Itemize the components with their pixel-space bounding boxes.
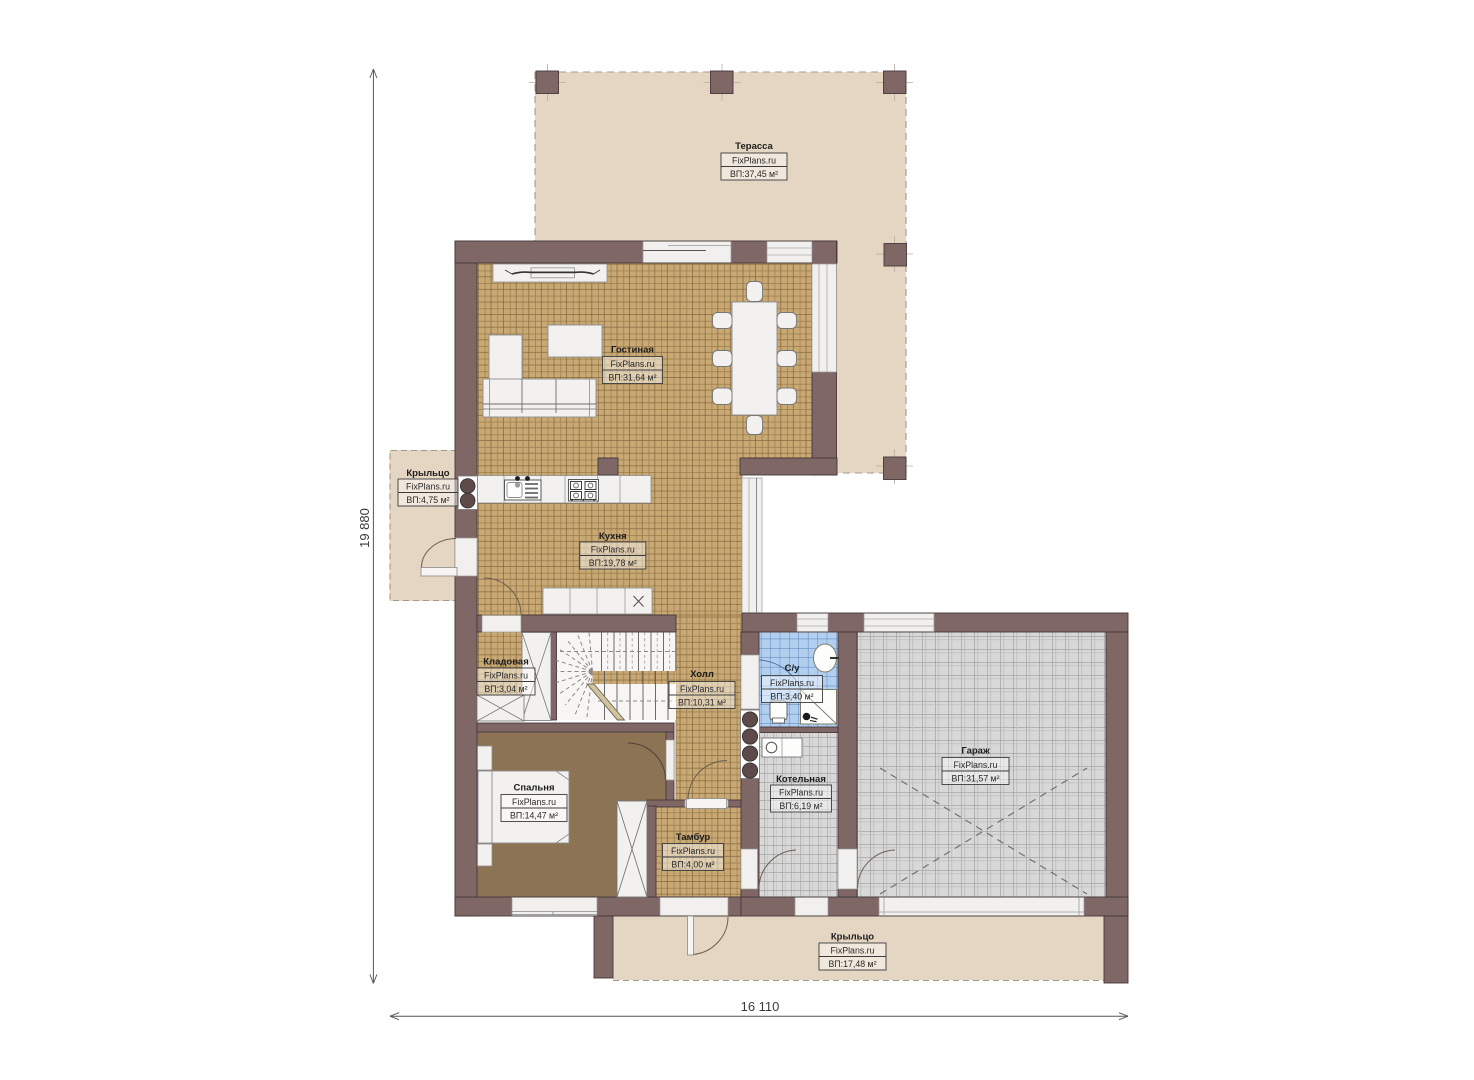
svg-text:Спальня: Спальня (513, 783, 554, 794)
svg-text:Крыльцо: Крыльцо (831, 932, 874, 943)
svg-text:19 880: 19 880 (357, 508, 372, 548)
svg-text:FixPlans.ru: FixPlans.ru (732, 155, 776, 165)
svg-text:FixPlans.ru: FixPlans.ru (770, 678, 814, 688)
svg-text:FixPlans.ru: FixPlans.ru (954, 760, 998, 770)
svg-text:Терасса: Терасса (735, 141, 773, 152)
svg-text:С/у: С/у (785, 663, 801, 674)
svg-text:ВП:37,45 м²: ВП:37,45 м² (730, 169, 778, 179)
svg-text:ВП:31,64 м²: ВП:31,64 м² (608, 372, 656, 382)
svg-text:FixPlans.ru: FixPlans.ru (611, 359, 655, 369)
svg-text:ВП:14,47 м²: ВП:14,47 м² (510, 810, 558, 820)
svg-text:ВП:6,19 м²: ВП:6,19 м² (779, 801, 822, 811)
svg-text:FixPlans.ru: FixPlans.ru (406, 481, 450, 491)
svg-text:FixPlans.ru: FixPlans.ru (671, 846, 715, 856)
svg-text:FixPlans.ru: FixPlans.ru (680, 684, 724, 694)
svg-text:ВП:3,04 м²: ВП:3,04 м² (484, 684, 527, 694)
svg-text:ВП:10,31 м²: ВП:10,31 м² (678, 697, 726, 707)
svg-text:FixPlans.ru: FixPlans.ru (779, 787, 823, 797)
svg-text:FixPlans.ru: FixPlans.ru (831, 945, 875, 955)
svg-text:Кладовая: Кладовая (483, 657, 529, 668)
svg-text:Крыльцо: Крыльцо (406, 468, 449, 479)
svg-text:FixPlans.ru: FixPlans.ru (484, 670, 528, 680)
svg-text:ВП:19,78 м²: ВП:19,78 м² (589, 558, 637, 568)
svg-text:Гараж: Гараж (961, 746, 990, 757)
svg-text:FixPlans.ru: FixPlans.ru (591, 544, 635, 554)
svg-text:ВП:31,57 м²: ВП:31,57 м² (951, 773, 999, 783)
svg-text:ВП:4,00 м²: ВП:4,00 м² (671, 859, 714, 869)
svg-text:16 110: 16 110 (741, 999, 780, 1014)
svg-text:Котельная: Котельная (776, 774, 826, 785)
svg-text:Холл: Холл (690, 669, 714, 680)
svg-text:ВП:3,40 м²: ВП:3,40 м² (770, 691, 813, 701)
svg-text:Гостиная: Гостиная (611, 345, 654, 356)
svg-text:ВП:17,48 м²: ВП:17,48 м² (828, 959, 876, 969)
svg-text:Тамбур: Тамбур (676, 832, 711, 843)
svg-text:FixPlans.ru: FixPlans.ru (512, 797, 556, 807)
svg-text:Кухня: Кухня (599, 531, 627, 542)
svg-text:ВП:4,75 м²: ВП:4,75 м² (406, 495, 449, 505)
